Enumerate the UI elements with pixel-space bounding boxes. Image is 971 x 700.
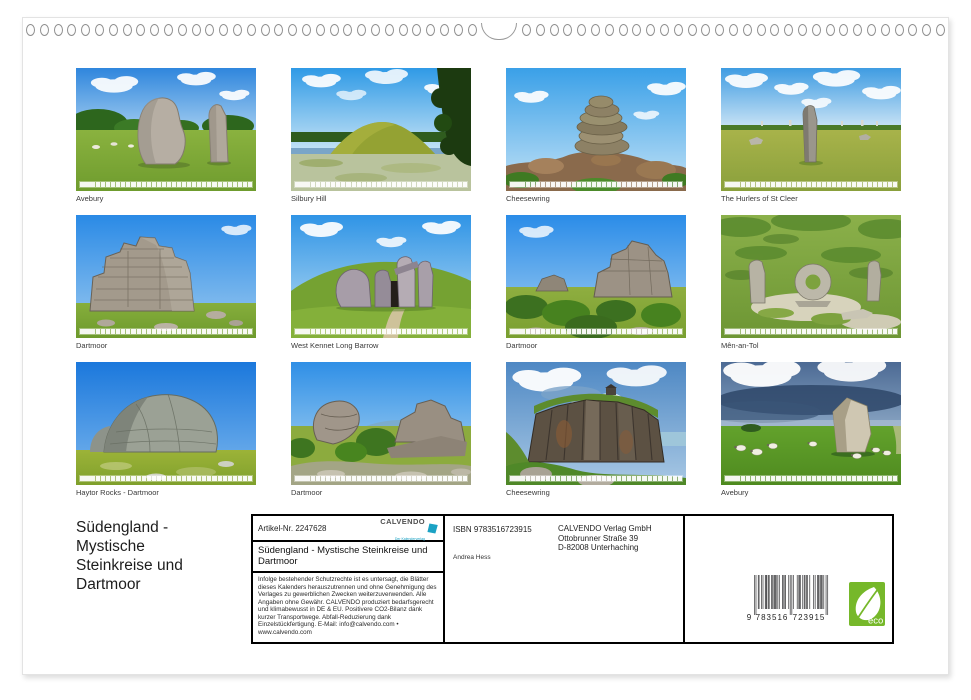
- mini-day-cell: [316, 182, 320, 187]
- mini-day-cell: [463, 476, 467, 481]
- mini-day-cell: [126, 182, 130, 187]
- mini-day-cell: [771, 182, 775, 187]
- mini-day-cell: [228, 476, 232, 481]
- mini-day-cell: [407, 182, 411, 187]
- calendar-sheet: Avebury Silbury Hill Cheesewring The Hur…: [22, 17, 949, 675]
- mini-day-cell: [792, 329, 796, 334]
- mini-day-cell: [463, 329, 467, 334]
- mini-day-cell: [427, 329, 431, 334]
- binding-ring: [701, 24, 710, 36]
- mini-day-cell: [372, 182, 376, 187]
- calendar-month-thumbnail: Silbury Hill: [291, 68, 471, 203]
- mini-day-cell: [248, 182, 252, 187]
- binding-ring: [743, 24, 752, 36]
- mini-day-cell: [546, 329, 550, 334]
- mini-day-cell: [852, 329, 856, 334]
- mini-day-cell: [822, 329, 826, 334]
- mini-day-cell: [172, 329, 176, 334]
- mini-day-cell: [807, 476, 811, 481]
- photo-scene: [506, 68, 686, 191]
- mini-day-cell: [642, 182, 646, 187]
- mini-day-cell: [182, 476, 186, 481]
- legal-notice: Infolge bestehender Schutzrechte ist es …: [253, 573, 443, 642]
- mini-day-cell: [147, 182, 151, 187]
- mini-day-cell: [868, 329, 872, 334]
- mini-day-cell: [443, 329, 447, 334]
- calendar-month-thumbnail: Avebury: [721, 362, 901, 497]
- mini-day-cell: [602, 476, 606, 481]
- mini-day-cell: [622, 182, 626, 187]
- binding-ring: [330, 24, 339, 36]
- mini-day-cell: [443, 182, 447, 187]
- mini-day-cell: [617, 329, 621, 334]
- mini-day-cell: [202, 329, 206, 334]
- mini-day-cell: [592, 476, 596, 481]
- month-photo-dartmoor-boulders: [291, 362, 471, 485]
- photo-scene: [506, 362, 686, 485]
- mini-day-cell: [458, 182, 462, 187]
- binding-ring: [67, 24, 76, 36]
- photo-scene: [291, 68, 471, 191]
- mini-day-cell: [812, 476, 816, 481]
- svg-text:783516: 783516: [756, 613, 789, 622]
- mini-day-cell: [331, 182, 335, 187]
- mini-day-cell: [152, 182, 156, 187]
- mini-day-cell: [878, 476, 882, 481]
- mini-day-cell: [577, 182, 581, 187]
- mini-day-cell: [817, 329, 821, 334]
- mini-date-strip: [509, 181, 683, 188]
- mini-day-cell: [847, 182, 851, 187]
- mini-day-cell: [438, 329, 442, 334]
- mini-day-cell: [106, 329, 110, 334]
- mini-day-cell: [888, 476, 892, 481]
- mini-day-cell: [883, 329, 887, 334]
- mini-month-cell: [295, 476, 310, 481]
- mini-day-cell: [111, 329, 115, 334]
- mini-day-cell: [357, 476, 361, 481]
- mini-day-cell: [248, 476, 252, 481]
- binding-ring: [288, 24, 297, 36]
- binding-ring: [261, 24, 270, 36]
- mini-day-cell: [131, 476, 135, 481]
- mini-day-cell: [331, 476, 335, 481]
- calendar-month-thumbnail: The Hurlers of St Cleer: [721, 68, 901, 203]
- binding-ring: [26, 24, 35, 36]
- mini-day-cell: [526, 329, 530, 334]
- mini-day-cell: [311, 182, 315, 187]
- mini-day-cell: [663, 476, 667, 481]
- binding-ring: [895, 24, 904, 36]
- mini-day-cell: [617, 182, 621, 187]
- mini-day-cell: [202, 182, 206, 187]
- info-box-middle-column: ISBN 9783516723915 Andrea Hess CALVENDO …: [445, 516, 685, 642]
- mini-day-cell: [341, 329, 345, 334]
- mini-day-cell: [311, 329, 315, 334]
- svg-text:9: 9: [747, 613, 752, 622]
- binding-ring: [233, 24, 242, 36]
- mini-day-cell: [326, 329, 330, 334]
- mini-day-cell: [407, 329, 411, 334]
- photo-caption: Cheesewring: [506, 194, 686, 203]
- mini-day-cell: [321, 329, 325, 334]
- mini-day-cell: [106, 476, 110, 481]
- mini-day-cell: [331, 329, 335, 334]
- mini-day-cell: [822, 476, 826, 481]
- mini-day-cell: [893, 329, 897, 334]
- mini-day-cell: [427, 476, 431, 481]
- mini-day-cell: [402, 182, 406, 187]
- mini-day-cell: [761, 182, 765, 187]
- calendar-title: Südengland -MystischeSteinkreise undDart…: [76, 518, 183, 594]
- mini-month-cell: [80, 182, 95, 187]
- mini-day-cell: [197, 182, 201, 187]
- photo-scene: [721, 362, 901, 485]
- binding-ring: [563, 24, 572, 36]
- mini-day-cell: [878, 329, 882, 334]
- mini-day-cell: [782, 182, 786, 187]
- mini-day-cell: [157, 182, 161, 187]
- mini-day-cell: [223, 329, 227, 334]
- mini-day-cell: [137, 476, 141, 481]
- mini-day-cell: [357, 329, 361, 334]
- mini-day-cell: [612, 476, 616, 481]
- mini-day-cell: [632, 476, 636, 481]
- mini-day-cell: [627, 182, 631, 187]
- mini-day-cell: [121, 182, 125, 187]
- mini-day-cell: [546, 182, 550, 187]
- mini-day-cell: [551, 329, 555, 334]
- mini-day-cell: [142, 329, 146, 334]
- mini-day-cell: [592, 182, 596, 187]
- mini-day-cell: [96, 476, 100, 481]
- mini-day-cell: [192, 476, 196, 481]
- mini-day-cell: [101, 329, 105, 334]
- mini-day-cell: [812, 329, 816, 334]
- mini-day-cell: [888, 182, 892, 187]
- product-title: Südengland - Mystische Steinkreise und D…: [253, 542, 443, 573]
- mini-day-cell: [207, 329, 211, 334]
- mini-day-cell: [807, 182, 811, 187]
- mini-day-cell: [787, 476, 791, 481]
- mini-day-cell: [367, 329, 371, 334]
- mini-day-cell: [162, 329, 166, 334]
- mini-day-cell: [433, 329, 437, 334]
- calvendo-logo-tagline: Der Kalenderverlag: [395, 537, 425, 541]
- mini-day-cell: [526, 476, 530, 481]
- mini-day-cell: [771, 329, 775, 334]
- mini-day-cell: [137, 182, 141, 187]
- mini-day-cell: [678, 329, 682, 334]
- mini-day-cell: [167, 476, 171, 481]
- calendar-month-thumbnail: Dartmoor: [291, 362, 471, 497]
- mini-day-cell: [746, 182, 750, 187]
- binding-ring: [770, 24, 779, 36]
- mini-day-cell: [233, 182, 237, 187]
- eco-label: eco: [868, 616, 883, 627]
- mini-day-cell: [607, 182, 611, 187]
- mini-day-cell: [116, 329, 120, 334]
- mini-day-cell: [362, 182, 366, 187]
- mini-day-cell: [443, 476, 447, 481]
- calendar-month-thumbnail: Dartmoor: [76, 215, 256, 350]
- mini-day-cell: [597, 329, 601, 334]
- mini-day-cell: [311, 476, 315, 481]
- mini-date-strip: [79, 181, 253, 188]
- mini-day-cell: [536, 182, 540, 187]
- mini-day-cell: [172, 476, 176, 481]
- mini-day-cell: [776, 182, 780, 187]
- binding-ring: [812, 24, 821, 36]
- binding-ring: [908, 24, 917, 36]
- binding-ring: [853, 24, 862, 36]
- month-photo-silbury-hill: [291, 68, 471, 191]
- month-photo-dartmoor-rock: [506, 215, 686, 338]
- mini-day-cell: [243, 182, 247, 187]
- eco-logo: eco: [849, 582, 885, 626]
- binding-ring: [371, 24, 380, 36]
- mini-month-cell: [510, 476, 525, 481]
- mini-day-cell: [152, 476, 156, 481]
- mini-day-cell: [756, 329, 760, 334]
- mini-day-cell: [458, 329, 462, 334]
- mini-day-cell: [157, 476, 161, 481]
- photo-scene: [721, 68, 901, 191]
- binding-ring: [316, 24, 325, 36]
- mini-day-cell: [653, 476, 657, 481]
- mini-day-cell: [392, 182, 396, 187]
- mini-day-cell: [637, 329, 641, 334]
- mini-day-cell: [673, 329, 677, 334]
- binding-ring: [550, 24, 559, 36]
- mini-day-cell: [766, 329, 770, 334]
- mini-day-cell: [453, 182, 457, 187]
- calvendo-flag-icon: [427, 523, 438, 534]
- mini-day-cell: [678, 476, 682, 481]
- mini-day-cell: [873, 182, 877, 187]
- calendar-month-thumbnail: Haytor Rocks - Dartmoor: [76, 362, 256, 497]
- binding-ring: [936, 24, 945, 36]
- mini-day-cell: [212, 182, 216, 187]
- mini-day-cell: [817, 476, 821, 481]
- mini-day-cell: [352, 476, 356, 481]
- binding-ring: [385, 24, 394, 36]
- mini-day-cell: [131, 329, 135, 334]
- binding-ring: [54, 24, 63, 36]
- mini-day-cell: [218, 329, 222, 334]
- info-box-right-column: 9 783516 723915 eco: [685, 516, 892, 642]
- mini-day-cell: [663, 329, 667, 334]
- mini-day-cell: [157, 329, 161, 334]
- mini-day-cell: [223, 476, 227, 481]
- calendar-month-thumbnail: West Kennet Long Barrow: [291, 215, 471, 350]
- mini-month-cell: [725, 476, 740, 481]
- calendar-month-thumbnail: Dartmoor: [506, 215, 686, 350]
- mini-day-cell: [387, 329, 391, 334]
- mini-day-cell: [577, 329, 581, 334]
- mini-day-cell: [787, 182, 791, 187]
- mini-day-cell: [541, 476, 545, 481]
- mini-day-cell: [197, 329, 201, 334]
- mini-day-cell: [827, 182, 831, 187]
- mini-day-cell: [837, 476, 841, 481]
- mini-day-cell: [142, 182, 146, 187]
- mini-day-cell: [597, 476, 601, 481]
- mini-day-cell: [827, 476, 831, 481]
- mini-day-cell: [433, 182, 437, 187]
- mini-day-cell: [352, 329, 356, 334]
- mini-day-cell: [888, 329, 892, 334]
- mini-day-cell: [766, 476, 770, 481]
- mini-day-cell: [531, 476, 535, 481]
- binding-ring: [178, 24, 187, 36]
- mini-day-cell: [192, 182, 196, 187]
- mini-day-cell: [177, 329, 181, 334]
- mini-day-cell: [572, 329, 576, 334]
- binding-ring: [715, 24, 724, 36]
- mini-day-cell: [561, 476, 565, 481]
- mini-day-cell: [187, 329, 191, 334]
- mini-day-cell: [832, 329, 836, 334]
- month-photo-men-an-tol: [721, 215, 901, 338]
- mini-date-strip: [724, 328, 898, 335]
- mini-day-cell: [832, 182, 836, 187]
- mini-day-cell: [673, 182, 677, 187]
- mini-day-cell: [238, 476, 242, 481]
- mini-day-cell: [878, 182, 882, 187]
- mini-day-cell: [162, 476, 166, 481]
- mini-day-cell: [602, 329, 606, 334]
- mini-day-cell: [228, 329, 232, 334]
- mini-day-cell: [392, 476, 396, 481]
- binding-ring: [688, 24, 697, 36]
- binding-ring: [247, 24, 256, 36]
- mini-day-cell: [197, 476, 201, 481]
- mini-day-cell: [766, 182, 770, 187]
- mini-day-cell: [248, 329, 252, 334]
- photo-caption: Avebury: [721, 488, 901, 497]
- mini-day-cell: [863, 329, 867, 334]
- mini-day-cell: [792, 182, 796, 187]
- mini-date-strip: [509, 475, 683, 482]
- mini-day-cell: [802, 182, 806, 187]
- mini-day-cell: [182, 329, 186, 334]
- mini-day-cell: [336, 476, 340, 481]
- mini-day-cell: [402, 476, 406, 481]
- mini-day-cell: [382, 329, 386, 334]
- binding-ring: [343, 24, 352, 36]
- mini-month-cell: [295, 329, 310, 334]
- photo-caption: Haytor Rocks - Dartmoor: [76, 488, 256, 497]
- mini-day-cell: [536, 476, 540, 481]
- mini-day-cell: [668, 329, 672, 334]
- mini-day-cell: [531, 329, 535, 334]
- binding-ring: [577, 24, 586, 36]
- photo-caption: Avebury: [76, 194, 256, 203]
- mini-day-cell: [223, 182, 227, 187]
- mini-day-cell: [642, 329, 646, 334]
- mini-day-cell: [233, 476, 237, 481]
- photo-scene: [76, 215, 256, 338]
- calendar-back-page: { "page": { "title_lines": ["Südengland …: [0, 0, 971, 700]
- month-photo-avebury-stones: [76, 68, 256, 191]
- mini-day-cell: [448, 476, 452, 481]
- article-number-row: Artikel-Nr. 2247628 CALVENDO Der Kalende…: [253, 516, 443, 542]
- mini-day-cell: [417, 476, 421, 481]
- binding-ring: [674, 24, 683, 36]
- mini-day-cell: [627, 476, 631, 481]
- mini-day-cell: [863, 182, 867, 187]
- mini-day-cell: [653, 182, 657, 187]
- binding-ring: [95, 24, 104, 36]
- mini-day-cell: [536, 329, 540, 334]
- mini-day-cell: [463, 182, 467, 187]
- photo-caption: The Hurlers of St Cleer: [721, 194, 901, 203]
- mini-day-cell: [321, 476, 325, 481]
- photo-scene: [76, 68, 256, 191]
- mini-day-cell: [658, 329, 662, 334]
- mini-day-cell: [212, 476, 216, 481]
- mini-day-cell: [121, 329, 125, 334]
- photo-caption: Cheesewring: [506, 488, 686, 497]
- mini-day-cell: [572, 182, 576, 187]
- mini-day-cell: [212, 329, 216, 334]
- binding-ring: [619, 24, 628, 36]
- mini-day-cell: [556, 329, 560, 334]
- mini-month-cell: [80, 329, 95, 334]
- mini-day-cell: [658, 476, 662, 481]
- mini-day-cell: [177, 476, 181, 481]
- binding-ring: [839, 24, 848, 36]
- calvendo-logo: CALVENDO Der Kalenderverlag: [380, 512, 438, 544]
- ean-barcode-svg: 9 783516 723915: [745, 572, 835, 622]
- mini-day-cell: [187, 476, 191, 481]
- mini-day-cell: [612, 182, 616, 187]
- mini-day-cell: [341, 182, 345, 187]
- mini-day-cell: [592, 329, 596, 334]
- mini-day-cell: [802, 476, 806, 481]
- mini-day-cell: [782, 476, 786, 481]
- mini-day-cell: [377, 329, 381, 334]
- month-photo-avebury-sheep: [721, 362, 901, 485]
- mini-day-cell: [121, 476, 125, 481]
- mini-day-cell: [238, 182, 242, 187]
- binding-ring: [81, 24, 90, 36]
- photo-scene: [506, 215, 686, 338]
- ean-barcode: 9 783516 723915: [745, 572, 835, 627]
- mini-day-cell: [137, 329, 141, 334]
- photo-caption: West Kennet Long Barrow: [291, 341, 471, 350]
- mini-day-cell: [837, 182, 841, 187]
- mini-day-cell: [582, 329, 586, 334]
- mini-day-cell: [111, 182, 115, 187]
- binding-ring: [274, 24, 283, 36]
- mini-day-cell: [617, 476, 621, 481]
- mini-day-cell: [546, 476, 550, 481]
- binding-ring: [729, 24, 738, 36]
- mini-day-cell: [751, 182, 755, 187]
- mini-day-cell: [637, 182, 641, 187]
- binding-ring: [219, 24, 228, 36]
- binding-ring: [660, 24, 669, 36]
- mini-day-cell: [746, 476, 750, 481]
- mini-day-cell: [142, 476, 146, 481]
- mini-day-cell: [387, 182, 391, 187]
- mini-day-cell: [577, 476, 581, 481]
- mini-day-cell: [152, 329, 156, 334]
- mini-day-cell: [96, 329, 100, 334]
- mini-day-cell: [316, 476, 320, 481]
